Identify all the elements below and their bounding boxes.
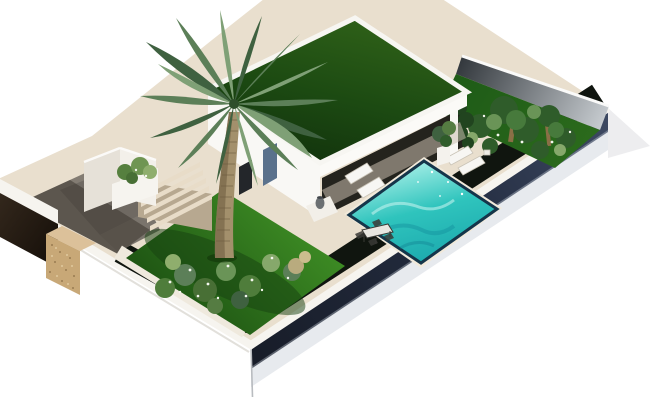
villa-render-canvas [0,0,660,410]
villa-render-image [0,0,660,410]
palm-crown-center [229,99,239,109]
